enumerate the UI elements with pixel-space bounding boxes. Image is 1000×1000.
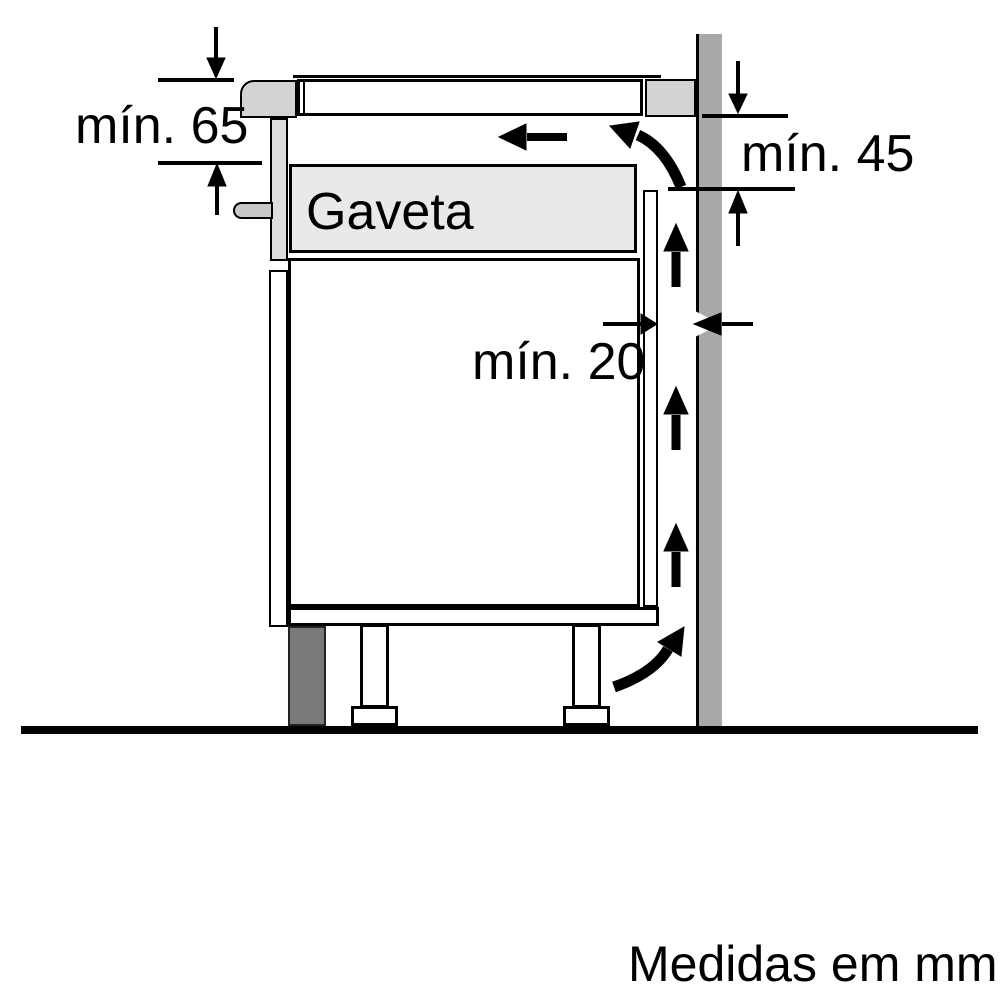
dimension-arrow-down-right-icon [729, 61, 747, 113]
airflow-arrow-left-icon [499, 124, 567, 150]
airflow-arrow-up-1-icon [664, 224, 688, 287]
installation-diagram: mín. 65 mín. 45 mín. 20 Gaveta Medidas e… [0, 0, 1000, 1000]
dimension-arrow-up-left-icon [208, 164, 226, 215]
airflow-arrow-up-3-icon [664, 524, 688, 587]
airflow-curved-arrow-top-icon [610, 122, 681, 187]
airflow-arrow-up-2-icon [664, 387, 688, 450]
dimension-arrow-up-right-icon [729, 191, 747, 246]
airflow-curved-arrow-bottom-icon [614, 627, 684, 687]
clearance-arrow-right-icon [603, 314, 657, 334]
arrows-overlay [0, 0, 1000, 1000]
dimension-arrow-down-left-icon [207, 27, 225, 78]
